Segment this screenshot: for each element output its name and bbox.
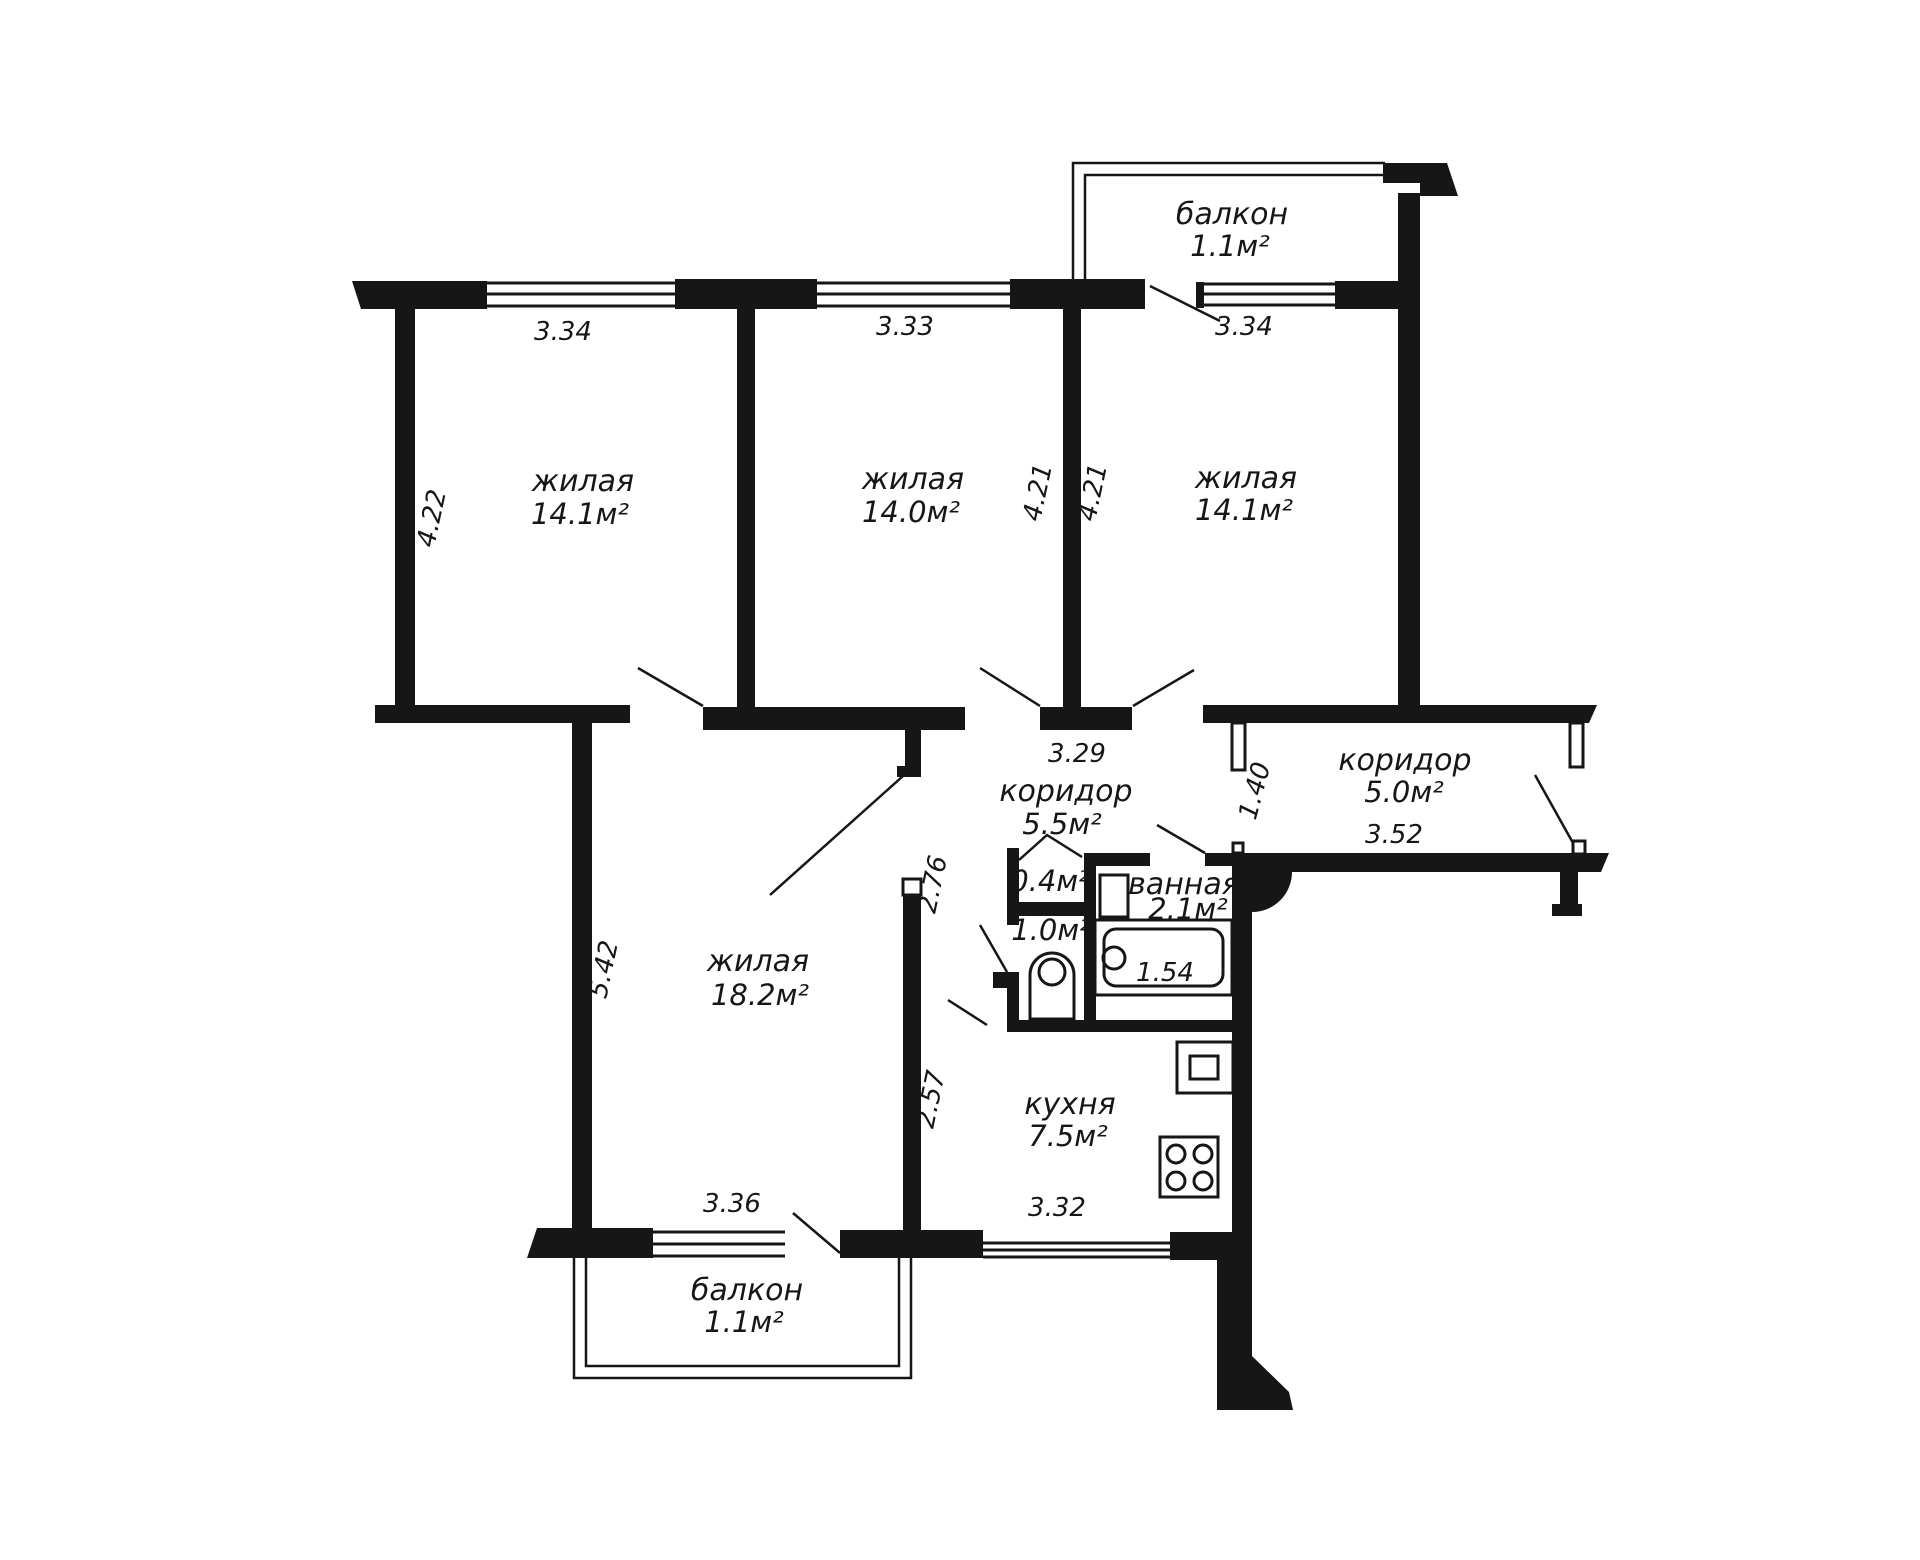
living-large-area: 18.2м² [711, 978, 809, 1012]
wall [993, 972, 1019, 988]
dim-corridor-entry-width: 3.52 [1365, 820, 1423, 850]
dim-living-large-width: 3.36 [703, 1189, 761, 1219]
dim-living2-depth: 4.21 [1017, 461, 1058, 524]
wall [1170, 1232, 1252, 1260]
door-jamb [1570, 723, 1583, 767]
bathtub-drain-icon [1103, 947, 1125, 969]
room3-area: 14.1м² [1195, 493, 1293, 527]
floor-plan-page: жилая 14.1м² жилая 14.0м² жилая 14.1м² ж… [0, 0, 1920, 1560]
dim-kitchen-width: 3.32 [1028, 1193, 1086, 1223]
balcony-bottom-name: балкон [691, 1273, 803, 1308]
sink-icon [1100, 875, 1128, 917]
stove-burner-icon [1194, 1145, 1212, 1163]
balcony-top-area: 1.1м² [1190, 229, 1270, 263]
wall [1552, 904, 1582, 916]
wall [1205, 853, 1232, 866]
wall [1217, 1260, 1293, 1410]
window-living2 [817, 283, 1010, 306]
dim-living3-width: 3.34 [1215, 312, 1273, 342]
kitchen-sink-inner-icon [1190, 1056, 1218, 1079]
bathroom-area: 2.1м² [1148, 892, 1228, 926]
wall [1232, 853, 1252, 1260]
kitchen-sink-icon [1177, 1042, 1233, 1093]
dim-corridor-main-width: 3.29 [1048, 739, 1106, 769]
door-leaf-balcony-bottom [793, 1213, 840, 1253]
dim-bath-length: 1.54 [1136, 958, 1194, 988]
wall [1203, 705, 1597, 723]
wall [903, 895, 921, 1232]
corridor-main-name: коридор [999, 774, 1132, 809]
stove-burner-icon [1167, 1172, 1185, 1190]
wall [1560, 872, 1578, 908]
door-leaf-entry [1535, 775, 1573, 843]
stove-burner-icon [1194, 1172, 1212, 1190]
dim-living1-width: 3.34 [534, 317, 592, 347]
wall [1010, 279, 1145, 309]
window-kitchen [983, 1243, 1170, 1257]
room3-name: жилая [1194, 461, 1297, 496]
room2-name: жилая [861, 462, 964, 497]
door-leaf-wc [980, 925, 1007, 972]
wall [703, 707, 965, 730]
corridor-entry-name: коридор [1338, 743, 1471, 778]
door-leaf-hall [770, 776, 903, 895]
kitchen-name: кухня [1024, 1087, 1115, 1122]
door-jamb [1232, 723, 1245, 770]
room2-area: 14.0м² [862, 495, 960, 529]
wall [1040, 707, 1132, 730]
kitchen-area: 7.5м² [1028, 1119, 1108, 1153]
wall [395, 309, 415, 705]
wall [675, 279, 817, 309]
door-leaf-bathroom [1157, 825, 1205, 853]
corridor-main-area: 5.5м² [1022, 807, 1102, 841]
wall-fillet [1252, 872, 1292, 912]
balcony-bottom-area: 1.1м² [704, 1305, 784, 1339]
balcony-top-name: балкон [1176, 197, 1288, 232]
door-leaf-living2 [980, 668, 1040, 706]
wall [897, 766, 921, 777]
wall [352, 281, 487, 309]
toilet-bowl-icon [1039, 959, 1065, 985]
window-living3 [1204, 284, 1335, 305]
room-labels: жилая 14.1м² жилая 14.0м² жилая 14.1м² ж… [531, 197, 1472, 1339]
wall [1196, 282, 1204, 308]
wall [1383, 163, 1458, 196]
corridor-entry-area: 5.0м² [1364, 775, 1444, 809]
door-leaf-kitchen [948, 1000, 987, 1025]
wall [905, 730, 921, 770]
dim-hall-upper-depth: 2.76 [912, 853, 953, 916]
wall [737, 309, 755, 707]
floor-plan-drawing: жилая 14.1м² жилая 14.0м² жилая 14.1м² ж… [0, 0, 1920, 1560]
wall [1095, 853, 1150, 866]
window-living-large [653, 1232, 785, 1256]
window-living1 [487, 283, 675, 306]
wall [527, 1228, 653, 1258]
room1-name: жилая [531, 464, 634, 499]
dim-living1-depth: 4.22 [411, 487, 452, 550]
living-large-name: жилая [706, 944, 809, 979]
wall [375, 705, 630, 723]
door-jamb [1573, 841, 1585, 854]
wall [1335, 281, 1400, 309]
stove-burner-icon [1167, 1145, 1185, 1163]
door-leaf-living3 [1133, 670, 1194, 706]
wall [840, 1230, 983, 1258]
wall [1007, 1020, 1232, 1032]
room1-area: 14.1м² [531, 497, 629, 531]
dim-living2-width: 3.33 [876, 312, 934, 342]
wall [1250, 853, 1609, 872]
door-jamb [1233, 843, 1243, 853]
door-leaf-living-large [638, 668, 703, 706]
storage-area: 0.4м² [1010, 864, 1090, 898]
wc-area: 1.0м² [1011, 913, 1091, 947]
wall [1398, 193, 1420, 705]
